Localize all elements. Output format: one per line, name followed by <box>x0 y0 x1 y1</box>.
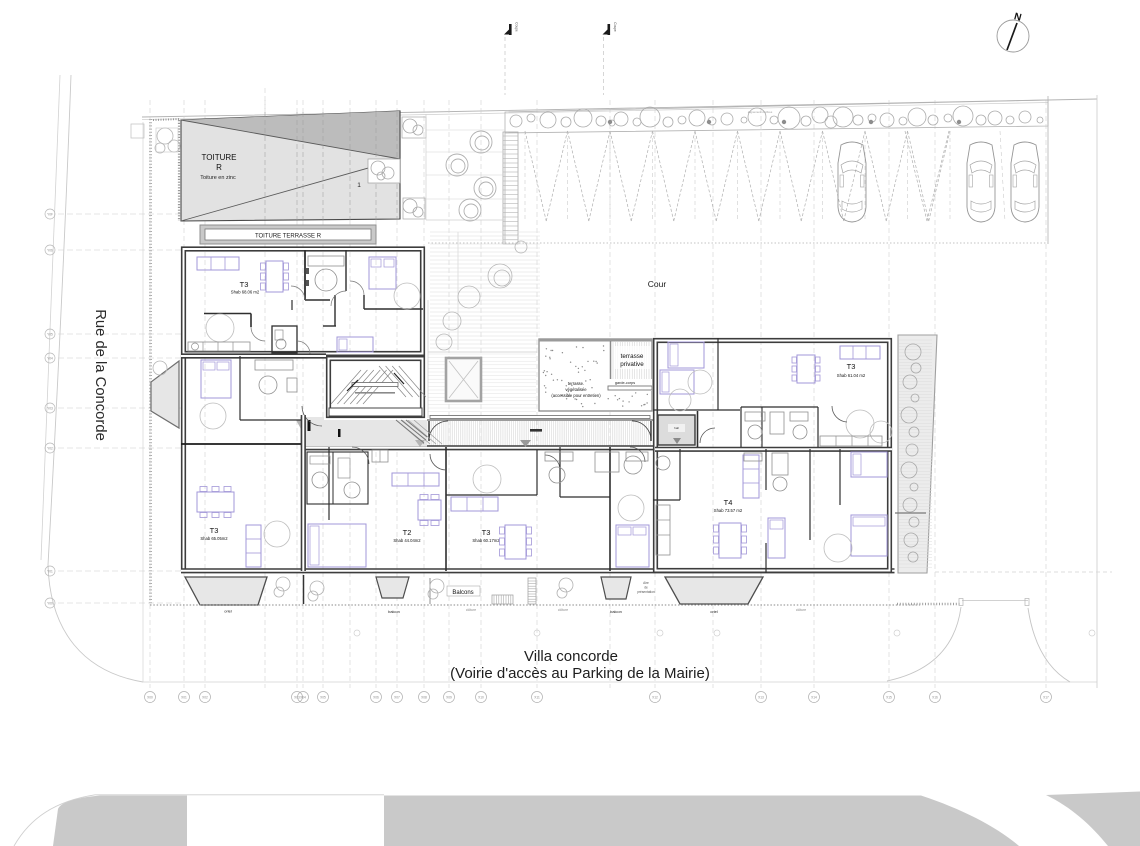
svg-text:X13: X13 <box>758 696 764 700</box>
svg-text:Shab 61.04 m2: Shab 61.04 m2 <box>837 373 866 378</box>
svg-text:Shab 68.06 m2: Shab 68.06 m2 <box>231 290 260 295</box>
svg-text:T4: T4 <box>724 498 733 507</box>
svg-text:Y02: Y02 <box>47 446 53 450</box>
svg-text:Shab 44.04m2: Shab 44.04m2 <box>393 538 421 543</box>
svg-text:Y0F: Y0F <box>47 212 53 216</box>
svg-text:T3: T3 <box>240 280 249 289</box>
svg-text:présentation: présentation <box>637 590 655 594</box>
svg-text:1: 1 <box>357 182 361 189</box>
svg-text:X15: X15 <box>886 696 892 700</box>
svg-text:X04: X04 <box>300 696 306 700</box>
svg-text:Coupe: Coupe <box>515 22 519 32</box>
svg-text:T3: T3 <box>210 526 219 535</box>
svg-text:TOITURE TERRASSE R: TOITURE TERRASSE R <box>255 234 322 240</box>
svg-text:clôture: clôture <box>466 608 476 612</box>
svg-text:Aire: Aire <box>643 581 649 585</box>
svg-text:X06: X06 <box>373 696 379 700</box>
svg-text:Shab 65.05m2: Shab 65.05m2 <box>200 536 228 541</box>
svg-text:balcon: balcon <box>388 609 400 614</box>
svg-text:Shab 73.57 m2: Shab 73.57 m2 <box>714 508 743 513</box>
svg-text:X07: X07 <box>394 696 400 700</box>
svg-text:hall: hall <box>674 426 679 430</box>
svg-text:X05: X05 <box>320 696 326 700</box>
svg-text:Y00: Y00 <box>47 601 53 605</box>
svg-text:T2: T2 <box>403 528 412 537</box>
svg-text:oriel: oriel <box>224 609 232 614</box>
svg-text:X14: X14 <box>811 696 817 700</box>
svg-text:Y06: Y06 <box>47 248 53 252</box>
svg-text:privative: privative <box>620 361 644 368</box>
svg-text:terrasse: terrasse <box>621 353 644 360</box>
svg-text:clôture: clôture <box>558 608 568 612</box>
svg-text:Balcons: Balcons <box>452 590 473 596</box>
svg-text:Toiture en zinc: Toiture en zinc <box>200 175 236 181</box>
svg-text:R: R <box>216 163 222 172</box>
svg-text:de: de <box>644 586 648 590</box>
svg-text:Rue de la Concorde: Rue de la Concorde <box>92 309 108 441</box>
svg-text:oriel: oriel <box>710 609 718 614</box>
svg-text:Y01: Y01 <box>47 569 53 573</box>
svg-text:alignement d'arbres: alignement d'arbres <box>748 110 773 114</box>
svg-text:végétalisée: végétalisée <box>565 387 587 392</box>
svg-text:Cour: Cour <box>648 279 667 289</box>
svg-text:X08: X08 <box>421 696 427 700</box>
svg-text:X00: X00 <box>147 696 153 700</box>
svg-text:Y03: Y03 <box>47 406 53 410</box>
svg-text:Coupe: Coupe <box>613 22 617 32</box>
svg-text:clôture: clôture <box>796 608 806 612</box>
svg-text:X01: X01 <box>181 696 187 700</box>
svg-text:T3: T3 <box>482 528 491 537</box>
svg-text:X10: X10 <box>478 696 484 700</box>
svg-text:Y04: Y04 <box>47 356 53 360</box>
svg-text:X09: X09 <box>446 696 452 700</box>
svg-text:X11: X11 <box>534 696 540 700</box>
svg-text:Y05: Y05 <box>47 332 53 336</box>
svg-text:X02: X02 <box>202 696 208 700</box>
svg-text:X17: X17 <box>1043 696 1049 700</box>
svg-text:balcon: balcon <box>610 609 622 614</box>
svg-text:(Voirie d'accès au Parking de: (Voirie d'accès au Parking de la Mairie) <box>450 665 710 682</box>
svg-text:T3: T3 <box>847 362 856 371</box>
svg-text:(accessible pour entretien): (accessible pour entretien) <box>551 393 601 398</box>
svg-text:garde-corps: garde-corps <box>615 381 635 385</box>
svg-text:X16: X16 <box>932 696 938 700</box>
svg-text:Villa concorde: Villa concorde <box>524 648 618 665</box>
svg-text:terrasse.: terrasse. <box>568 381 584 386</box>
svg-text:Shab 60.17m2: Shab 60.17m2 <box>472 538 500 543</box>
svg-text:TOITURE: TOITURE <box>202 153 237 162</box>
svg-text:X12: X12 <box>652 696 658 700</box>
